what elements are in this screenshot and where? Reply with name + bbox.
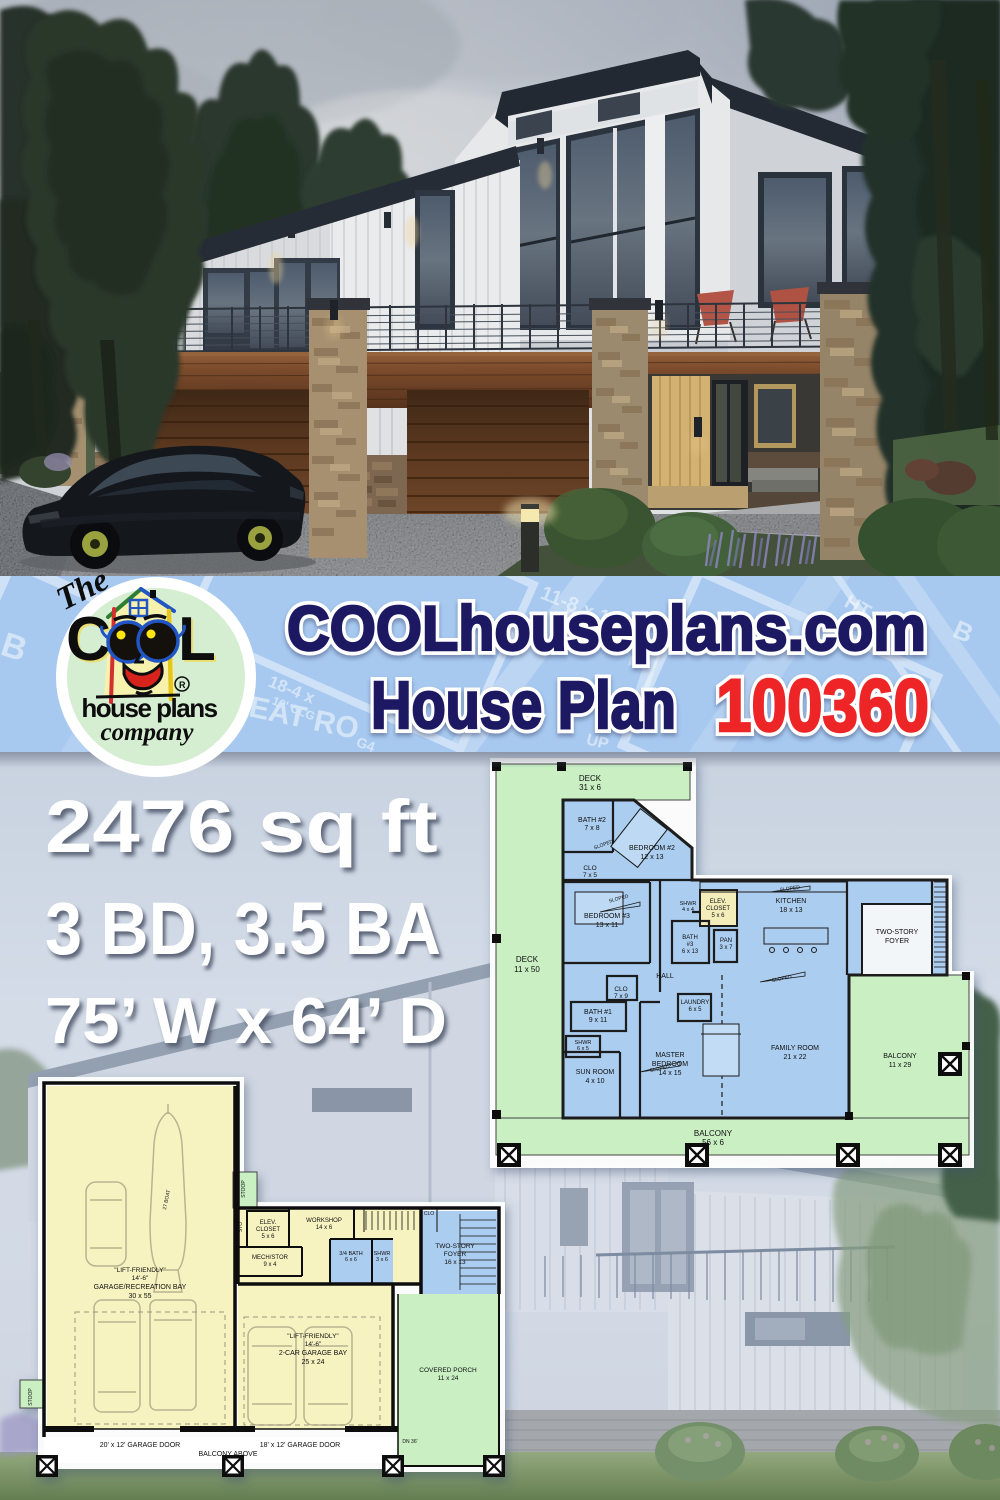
svg-text:LAUNDRY: LAUNDRY xyxy=(681,1000,710,1006)
svg-text:FOYER: FOYER xyxy=(885,938,909,945)
svg-text:#3: #3 xyxy=(687,942,694,948)
svg-text:7 x 9: 7 x 9 xyxy=(614,993,628,1000)
svg-text:C: C xyxy=(66,605,110,674)
svg-text:11 x 29: 11 x 29 xyxy=(889,1062,912,1069)
svg-text:PAN: PAN xyxy=(720,938,732,944)
svg-text:BALCONY: BALCONY xyxy=(883,1053,917,1060)
svg-text:CLO: CLO xyxy=(424,1211,434,1217)
svg-text:18 x 13: 18 x 13 xyxy=(780,907,803,914)
svg-text:WORKSHOP: WORKSHOP xyxy=(306,1218,342,1224)
svg-text:6 x 13: 6 x 13 xyxy=(682,949,699,955)
svg-text:CLO: CLO xyxy=(583,865,596,872)
svg-text:MASTER: MASTER xyxy=(655,1052,684,1059)
svg-text:BEDROOM #3: BEDROOM #3 xyxy=(584,913,630,920)
svg-text:25 x 24: 25 x 24 xyxy=(302,1359,325,1366)
svg-text:13 x 11: 13 x 11 xyxy=(596,922,619,929)
svg-text:STO: STO xyxy=(238,1222,244,1232)
svg-text:6 x 5: 6 x 5 xyxy=(688,1007,702,1013)
svg-text:3 x 7: 3 x 7 xyxy=(719,945,733,951)
svg-text:DN 36': DN 36' xyxy=(402,1439,417,1445)
svg-text:BATH #2: BATH #2 xyxy=(578,817,606,824)
svg-text:BALCONY: BALCONY xyxy=(694,1129,733,1138)
svg-text:4 x 10: 4 x 10 xyxy=(585,1078,604,1085)
svg-text:CLOSET: CLOSET xyxy=(706,906,730,912)
svg-text:18' x 12' GARAGE DOOR: 18' x 12' GARAGE DOOR xyxy=(260,1442,340,1449)
svg-text:"LIFT-FRIENDLY": "LIFT-FRIENDLY" xyxy=(287,1333,339,1340)
svg-text:MECH/STOR: MECH/STOR xyxy=(252,1255,289,1261)
svg-text:ELEV.: ELEV. xyxy=(710,899,727,905)
svg-text:HALL: HALL xyxy=(656,973,674,980)
svg-text:STOOP: STOOP xyxy=(28,1388,34,1406)
svg-text:9 x 4: 9 x 4 xyxy=(263,1262,277,1268)
svg-text:3 x 6: 3 x 6 xyxy=(376,1257,388,1263)
svg-text:TWO-STORY: TWO-STORY xyxy=(876,929,919,936)
svg-text:L: L xyxy=(178,605,216,674)
svg-text:16 x 13: 16 x 13 xyxy=(444,1259,466,1266)
svg-text:14 x 6: 14 x 6 xyxy=(316,1225,333,1231)
svg-text:House Plan: House Plan xyxy=(371,668,676,743)
svg-text:31 x 6: 31 x 6 xyxy=(579,783,601,792)
svg-text:6 x 5: 6 x 5 xyxy=(577,1046,589,1052)
svg-text:GARAGE/RECREATION BAY: GARAGE/RECREATION BAY xyxy=(94,1284,187,1291)
svg-text:14'-6": 14'-6" xyxy=(305,1341,322,1348)
svg-text:11 x 50: 11 x 50 xyxy=(514,965,540,974)
svg-text:FOYER: FOYER xyxy=(444,1251,467,1258)
svg-text:7 x 8: 7 x 8 xyxy=(584,825,599,832)
svg-text:2-CAR GARAGE BAY: 2-CAR GARAGE BAY xyxy=(279,1350,348,1357)
svg-text:5 x 6: 5 x 6 xyxy=(261,1234,275,1240)
svg-text:TWO-STORY: TWO-STORY xyxy=(435,1243,475,1250)
svg-text:COOLhouseplans.com: COOLhouseplans.com xyxy=(287,594,926,664)
svg-text:company: company xyxy=(100,719,194,746)
svg-text:12 x 13: 12 x 13 xyxy=(641,854,664,861)
svg-text:FAMILY ROOM: FAMILY ROOM xyxy=(771,1045,819,1052)
svg-text:4 x 4: 4 x 4 xyxy=(682,907,694,913)
svg-text:BEDROOM #2: BEDROOM #2 xyxy=(629,845,675,852)
svg-text:CLOSET: CLOSET xyxy=(256,1227,280,1233)
svg-text:20' x 12' GARAGE DOOR: 20' x 12' GARAGE DOOR xyxy=(100,1442,180,1449)
svg-text:11 x 24: 11 x 24 xyxy=(438,1375,459,1382)
svg-text:DECK: DECK xyxy=(516,955,539,964)
svg-text:COVERED PORCH: COVERED PORCH xyxy=(419,1367,477,1374)
svg-text:CLO: CLO xyxy=(614,986,627,993)
svg-text:100360: 100360 xyxy=(716,664,929,747)
svg-text:56 x 6: 56 x 6 xyxy=(702,1138,724,1147)
svg-text:"LIFT-FRIENDLY": "LIFT-FRIENDLY" xyxy=(114,1267,166,1274)
svg-text:21 x 22: 21 x 22 xyxy=(784,1054,807,1061)
svg-text:30 x 55: 30 x 55 xyxy=(129,1293,152,1300)
svg-text:6 x 6: 6 x 6 xyxy=(345,1257,357,1263)
svg-text:5 x 6: 5 x 6 xyxy=(711,913,725,919)
svg-text:STOOP: STOOP xyxy=(241,1180,247,1198)
svg-text:9 x 11: 9 x 11 xyxy=(589,1017,608,1024)
svg-text:BATH #1: BATH #1 xyxy=(584,1009,612,1016)
svg-text:SUN ROOM: SUN ROOM xyxy=(576,1069,615,1076)
svg-text:KITCHEN: KITCHEN xyxy=(776,898,807,905)
svg-text:14'-6": 14'-6" xyxy=(132,1275,149,1282)
svg-text:7 x 5: 7 x 5 xyxy=(583,872,597,879)
svg-text:BATH: BATH xyxy=(682,935,698,941)
svg-text:ELEV.: ELEV. xyxy=(260,1220,277,1226)
svg-text:R: R xyxy=(179,680,186,690)
